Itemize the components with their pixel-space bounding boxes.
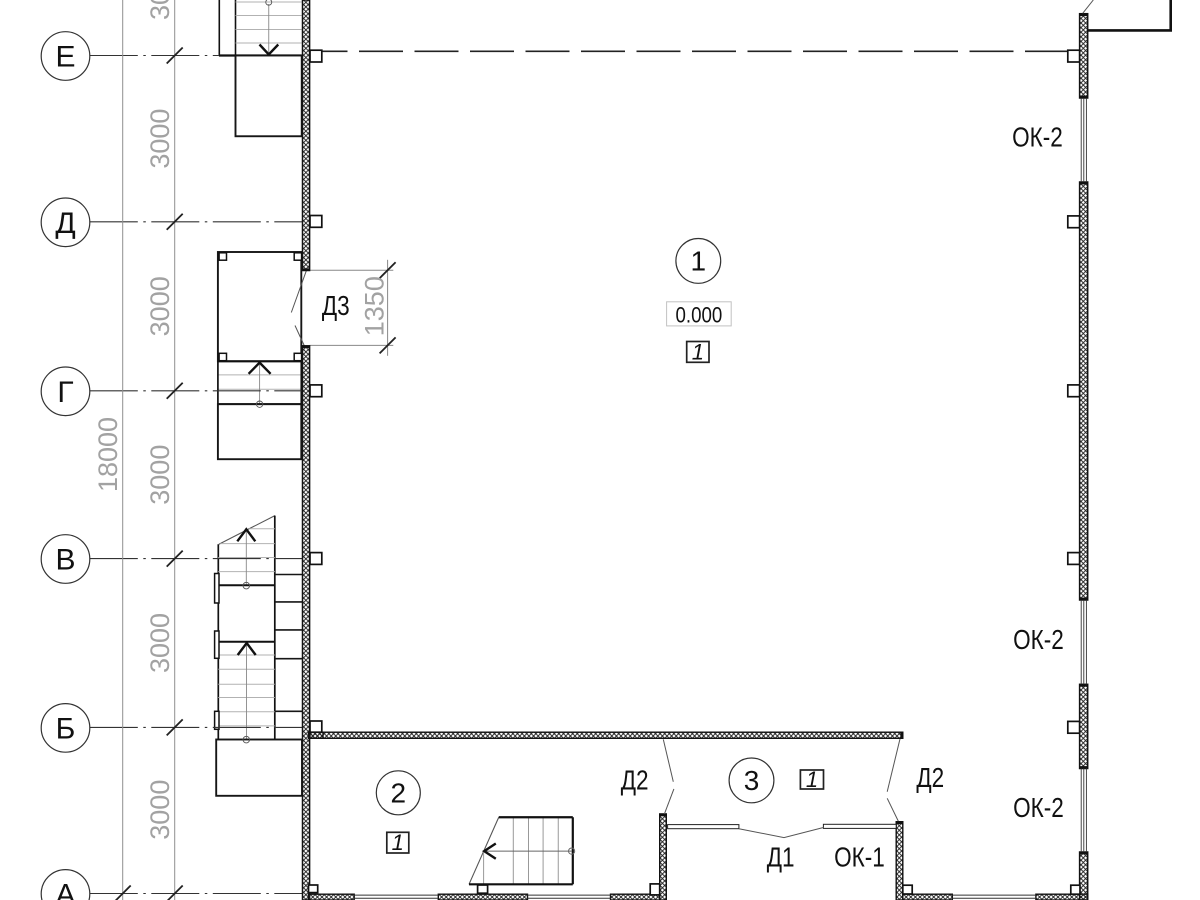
- svg-text:ОК-1: ОК-1: [834, 842, 885, 873]
- svg-text:Д3: Д3: [322, 291, 350, 322]
- svg-text:3000: 3000: [145, 109, 175, 169]
- svg-text:В: В: [55, 544, 75, 577]
- svg-text:0.000: 0.000: [676, 304, 723, 328]
- svg-text:1: 1: [392, 830, 404, 855]
- svg-text:1: 1: [691, 246, 707, 277]
- svg-text:Г: Г: [57, 376, 73, 409]
- svg-text:3000: 3000: [145, 276, 175, 336]
- svg-text:1350: 1350: [359, 276, 389, 336]
- svg-text:Д: Д: [55, 207, 75, 240]
- svg-text:3000: 3000: [145, 613, 175, 673]
- svg-text:3000: 3000: [145, 0, 175, 20]
- svg-text:Д2: Д2: [916, 763, 944, 794]
- svg-text:Д2: Д2: [621, 765, 649, 796]
- svg-text:ОК-2: ОК-2: [1013, 625, 1064, 656]
- svg-text:Д1: Д1: [767, 842, 795, 873]
- svg-text:3000: 3000: [145, 445, 175, 505]
- svg-text:18000: 18000: [93, 417, 123, 492]
- svg-text:ОК-2: ОК-2: [1012, 122, 1063, 153]
- svg-text:1: 1: [806, 767, 818, 792]
- svg-text:Е: Е: [55, 41, 75, 74]
- svg-text:А: А: [55, 878, 75, 900]
- svg-text:ОК-2: ОК-2: [1013, 793, 1064, 824]
- svg-text:1: 1: [692, 340, 704, 365]
- svg-text:Б: Б: [56, 712, 76, 745]
- svg-text:2: 2: [391, 778, 407, 809]
- svg-text:3: 3: [744, 765, 760, 796]
- svg-text:3000: 3000: [145, 780, 175, 840]
